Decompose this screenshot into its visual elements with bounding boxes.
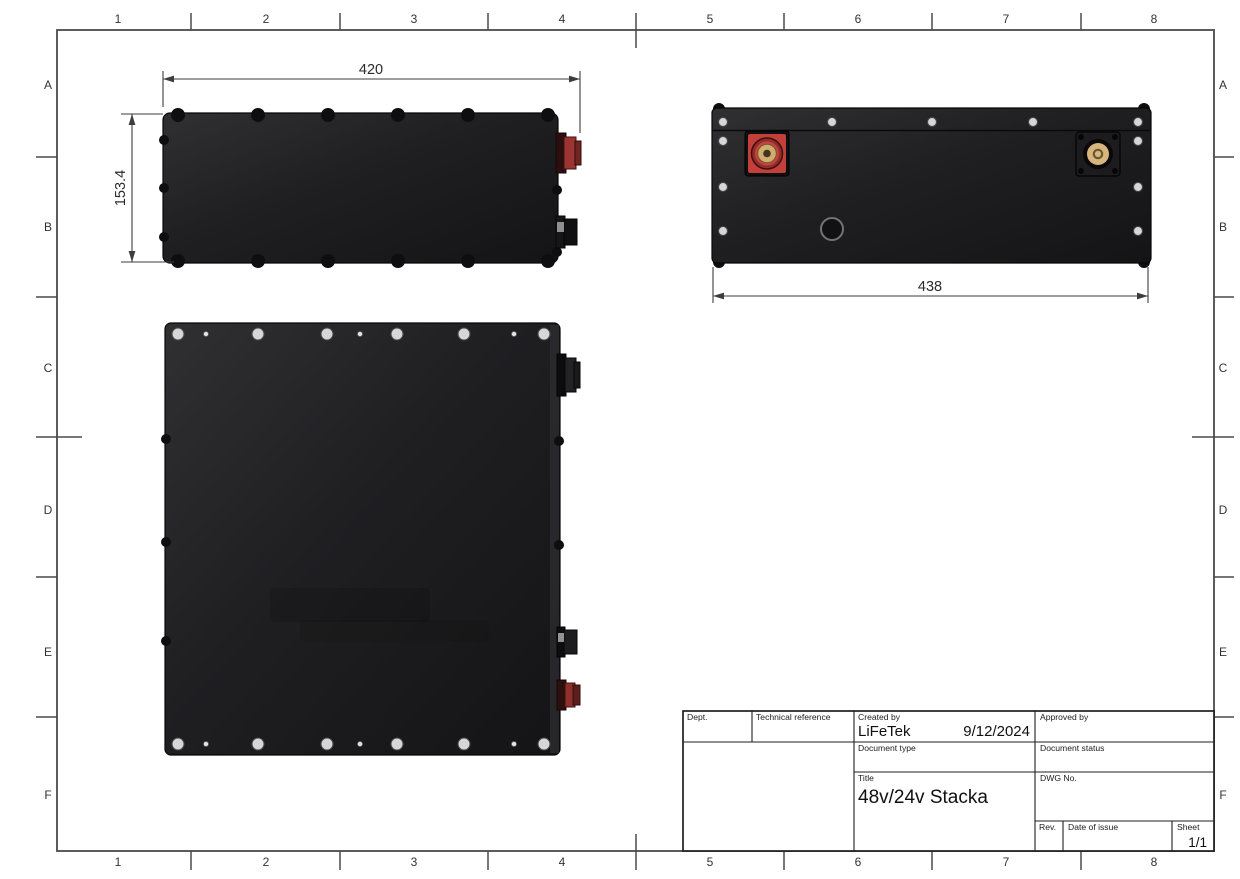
zone-column-label-top: 7 <box>1003 12 1010 26</box>
screw-icon <box>719 137 728 146</box>
screw-icon <box>719 118 728 127</box>
connector-tip <box>575 141 581 165</box>
power-connector-red-icon <box>557 680 580 710</box>
zone-row-label-right: A <box>1219 78 1227 92</box>
zone-column-label-top: 4 <box>559 12 566 26</box>
screw-icon <box>203 331 208 336</box>
screw-icon <box>172 328 184 340</box>
positive-terminal <box>745 131 789 176</box>
dept-label: Dept. <box>687 712 708 722</box>
screw-icon <box>321 328 333 340</box>
screw-icon <box>159 135 169 145</box>
screw-icon <box>1029 118 1038 127</box>
created-by-label: Created by <box>858 712 901 722</box>
rev-label: Rev. <box>1039 822 1056 832</box>
title-block-border <box>683 711 1214 851</box>
screw-icon <box>321 254 335 268</box>
screw-icon <box>357 331 362 336</box>
faint-embossing <box>300 620 490 642</box>
zone-row-label-right: D <box>1219 503 1228 517</box>
screw-icon <box>511 741 516 746</box>
terminal-bolt-icon <box>1078 168 1084 174</box>
title-block: Dept. Technical reference Created by LiF… <box>683 711 1214 851</box>
screw-icon <box>171 254 185 268</box>
screw-icon <box>171 108 185 122</box>
connector-tip <box>574 362 580 388</box>
zone-column-label-bottom: 6 <box>855 855 862 869</box>
negative-terminal <box>1076 132 1120 176</box>
screw-icon <box>172 738 184 750</box>
zone-column-label-top: 2 <box>263 12 270 26</box>
document-status-label: Document status <box>1040 743 1104 753</box>
screw-icon <box>252 738 264 750</box>
connector-body <box>564 219 577 245</box>
zone-row-label-left: D <box>44 503 53 517</box>
zone-column-label-bottom: 2 <box>263 855 270 869</box>
dimension-value: 438 <box>918 279 942 295</box>
aux-connector-icon <box>557 627 577 657</box>
zone-column-label-bottom: 8 <box>1151 855 1158 869</box>
zone-column-label-top: 5 <box>707 12 714 26</box>
zone-column-label-top: 6 <box>855 12 862 26</box>
terminal-bolt-icon <box>1112 168 1118 174</box>
zone-row-label-right: E <box>1219 645 1227 659</box>
screw-icon <box>719 227 728 236</box>
screw-icon <box>321 738 333 750</box>
created-by-value: LiFeTek <box>858 723 911 740</box>
screw-icon <box>928 118 937 127</box>
technical-reference-label: Technical reference <box>756 712 831 722</box>
screw-icon <box>357 741 362 746</box>
screw-icon <box>159 232 169 242</box>
screw-icon <box>391 254 405 268</box>
connector-body <box>564 630 577 654</box>
screw-icon <box>251 254 265 268</box>
screw-icon <box>1134 227 1143 236</box>
zone-column-label-top: 3 <box>411 12 418 26</box>
screw-icon <box>541 254 555 268</box>
screw-icon <box>719 183 728 192</box>
dimension-value: 153.4 <box>113 170 129 206</box>
screw-icon <box>1134 137 1143 146</box>
screw-icon <box>161 636 171 646</box>
screw-icon <box>541 108 555 122</box>
zone-column-label-bottom: 1 <box>115 855 122 869</box>
screw-icon <box>203 741 208 746</box>
zone-row-label-right: B <box>1219 220 1227 234</box>
terminal-bolt-icon <box>1078 134 1084 140</box>
zone-row-label-right: F <box>1219 788 1226 802</box>
screw-icon <box>461 108 475 122</box>
dwg-no-label: DWG No. <box>1040 773 1077 783</box>
screw-icon <box>391 328 403 340</box>
screw-icon <box>252 328 264 340</box>
screw-icon <box>458 328 470 340</box>
screw-icon <box>161 434 171 444</box>
document-type-label: Document type <box>858 743 916 753</box>
zone-column-label-top: 8 <box>1151 12 1158 26</box>
screw-icon <box>159 183 169 193</box>
terminal-bolt-icon <box>1112 134 1118 140</box>
zone-row-label-left: A <box>44 78 52 92</box>
dimension-value: 420 <box>359 62 383 78</box>
screw-icon <box>538 738 550 750</box>
faint-embossing <box>270 588 430 622</box>
terminal-center-hole <box>763 150 771 158</box>
screw-icon <box>511 331 516 336</box>
screw-icon <box>554 436 564 446</box>
screw-icon <box>554 540 564 550</box>
zone-row-label-left: F <box>44 788 51 802</box>
connector-tip <box>573 685 580 705</box>
zone-row-label-left: C <box>44 361 53 375</box>
zone-row-label-left: B <box>44 220 52 234</box>
terminal-brass-stud <box>1087 143 1109 165</box>
approved-by-label: Approved by <box>1040 712 1089 722</box>
zone-column-label-top: 1 <box>115 12 122 26</box>
screw-icon <box>251 108 265 122</box>
connector-body <box>564 137 576 169</box>
zone-column-label-bottom: 4 <box>559 855 566 869</box>
screw-icon <box>391 108 405 122</box>
screw-icon <box>321 108 335 122</box>
connector-latch <box>558 633 564 642</box>
zone-column-label-bottom: 7 <box>1003 855 1010 869</box>
screw-icon <box>461 254 475 268</box>
created-date-value: 9/12/2024 <box>963 723 1030 740</box>
sheet-value: 1/1 <box>1188 835 1207 850</box>
vent-plug-icon <box>821 218 843 240</box>
side-view-body <box>163 113 558 263</box>
zone-column-label-bottom: 3 <box>411 855 418 869</box>
screw-icon <box>458 738 470 750</box>
screw-icon <box>1134 118 1143 127</box>
top-view <box>161 323 580 755</box>
screw-icon <box>391 738 403 750</box>
aux-connector-black-icon <box>556 216 577 248</box>
zone-column-label-bottom: 5 <box>707 855 714 869</box>
screw-icon <box>1134 183 1143 192</box>
title-label: Title <box>858 773 874 783</box>
screw-icon <box>828 118 837 127</box>
connector-latch <box>557 222 564 232</box>
zone-row-label-right: C <box>1219 361 1228 375</box>
sheet-label: Sheet <box>1177 822 1200 832</box>
drawing-title-value: 48v/24v Stacka <box>858 787 988 808</box>
screw-icon <box>552 185 562 195</box>
zone-row-label-left: E <box>44 645 52 659</box>
screw-icon <box>161 537 171 547</box>
date-of-issue-label: Date of issue <box>1068 822 1118 832</box>
drawing-sheet: 1122334455667788AABBCCDDEEFF 420 <box>0 0 1240 879</box>
screw-icon <box>538 328 550 340</box>
top-view-body <box>165 323 560 755</box>
